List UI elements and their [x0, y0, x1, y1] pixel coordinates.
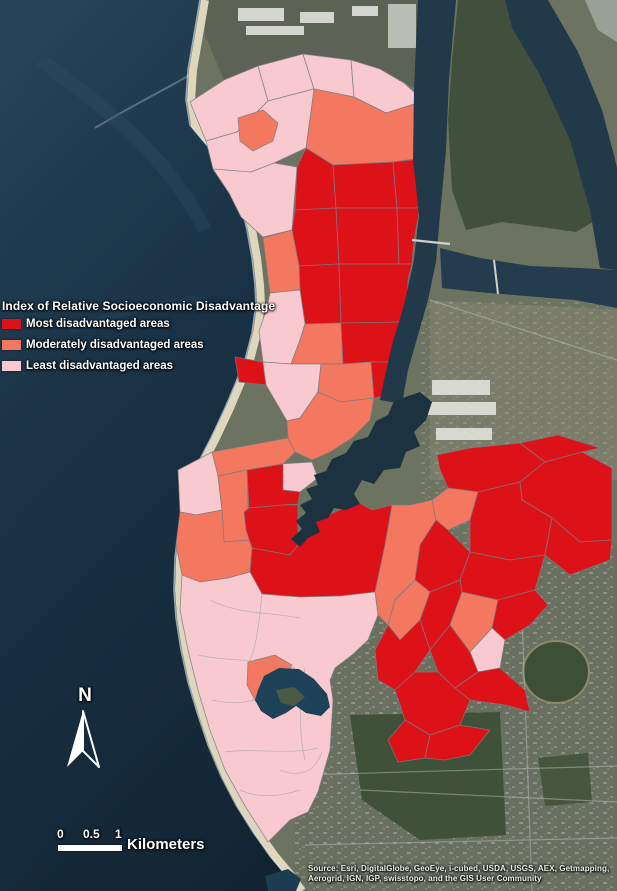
legend-item-least: Least disadvantaged areas — [2, 356, 312, 376]
legend-swatch-moderate — [2, 340, 21, 350]
racecourse-oval — [523, 641, 589, 703]
region-most — [339, 264, 412, 323]
scale-tick-0: 0 — [57, 827, 64, 841]
park-southeast — [538, 753, 592, 806]
scale-bar-rule — [58, 845, 122, 851]
scale-unit-label: Kilometers — [127, 836, 205, 853]
scale-tick-1: 1 — [115, 827, 122, 841]
region-most — [333, 162, 397, 208]
legend: Index of Relative Socioeconomic Disadvan… — [2, 299, 312, 376]
basemap-attribution: Source: Esri, DigitalGlobe, GeoEye, i-cu… — [308, 864, 614, 884]
north-arrow: N — [55, 685, 115, 780]
scale-bar: 0 0.5 1 Kilometers — [57, 827, 277, 857]
north-arrow-icon — [55, 685, 115, 780]
region-most — [336, 208, 399, 264]
legend-item-moderate: Moderately disadvantaged areas — [2, 335, 312, 355]
region-most — [292, 208, 339, 266]
legend-swatch-most — [2, 319, 21, 329]
legend-swatch-least — [2, 361, 21, 371]
legend-label-moderate: Moderately disadvantaged areas — [26, 339, 204, 351]
legend-item-most: Most disadvantaged areas — [2, 314, 312, 334]
scale-tick-05: 0.5 — [83, 827, 100, 841]
legend-label-most: Most disadvantaged areas — [26, 318, 170, 330]
legend-title: Index of Relative Socioeconomic Disadvan… — [2, 299, 312, 313]
legend-label-least: Least disadvantaged areas — [26, 360, 173, 372]
attribution-line-1: Source: Esri, DigitalGlobe, GeoEye, i-cu… — [308, 864, 614, 874]
map-figure: Index of Relative Socioeconomic Disadvan… — [0, 0, 617, 891]
attribution-line-2: Aerogrid, IGN, IGP, swisstopo, and the G… — [308, 874, 614, 884]
